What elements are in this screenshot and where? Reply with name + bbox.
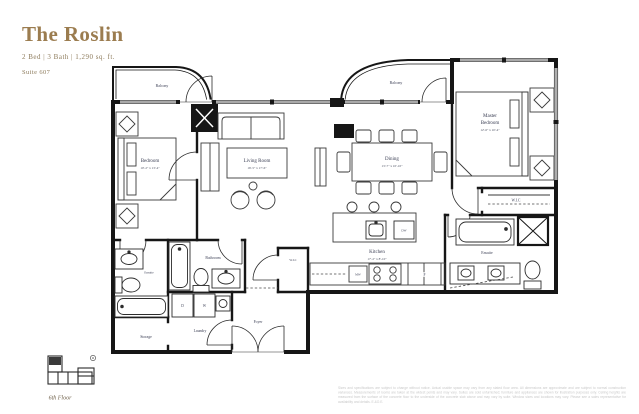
storage-label: Storage <box>140 335 152 339</box>
window-mullion <box>502 58 506 63</box>
bedroom-dims: 10'-2" x 13'-4" <box>140 166 160 170</box>
kitchen-fixtures: DW MW F <box>310 202 445 285</box>
master-ensuite-label: Ensuite <box>481 251 493 255</box>
disclaimer-text: Sizes and specifications are subject to … <box>338 386 626 404</box>
bedroom-label: Bedroom <box>141 159 160 164</box>
living-room-label: Living Room <box>244 159 271 164</box>
wall-pier <box>330 98 344 107</box>
dishwasher-label: DW <box>401 229 406 233</box>
balcony-left-label: Balcony <box>156 84 169 88</box>
compass-icon <box>90 355 95 360</box>
kitchen-label: Kitchen <box>369 250 385 255</box>
bathroom-fixtures <box>169 242 240 292</box>
dining-furniture <box>337 130 447 194</box>
master-bedroom-label-2: Bedroom <box>481 121 500 126</box>
window-mullion <box>554 120 559 124</box>
balcony-right-label: Balcony <box>390 81 403 85</box>
master-bedroom-label-1: Master <box>483 114 497 119</box>
keyplan: 6th Floor <box>48 355 96 401</box>
window-mullion <box>270 100 274 105</box>
master-wic-label: W.I.C <box>512 199 521 203</box>
washer-label: W <box>203 304 207 308</box>
kitchen-dims: 17'-2" x 8'-10" <box>367 257 387 261</box>
column <box>334 124 354 138</box>
living-room-dims: 16'-5" x 17'-6" <box>247 166 267 170</box>
foyer-label: Foyer <box>254 320 264 324</box>
bathroom-label: Bathroom <box>205 256 220 260</box>
living-room-furniture <box>218 113 326 209</box>
fridge-label: F <box>424 273 426 277</box>
dryer-label: D <box>181 304 184 308</box>
dining-label: Dining <box>385 157 399 162</box>
floorplan-page: The Roslin 2 Bed | 3 Bath | 1,290 sq. ft… <box>0 0 639 414</box>
laundry-label: Laundry <box>194 329 207 333</box>
dining-dims: 13'-7" x 10'-10" <box>382 164 404 168</box>
master-bedroom-dims: 12'-6" x 10'-4" <box>480 128 500 132</box>
hall-wic-label: W.I.C <box>289 258 296 262</box>
floorplan-drawing: DW MW F <box>0 0 639 414</box>
highlighted-unit <box>49 357 61 365</box>
master-bedroom-furniture <box>456 88 554 180</box>
window-mullion <box>380 100 384 105</box>
bedroom-ensuite-label: Ensuite <box>144 271 154 275</box>
laundry-fixtures: D W <box>172 294 230 317</box>
keyplan-caption: 6th Floor <box>49 396 72 402</box>
bedroom-ensuite-fixtures <box>115 249 168 317</box>
microwave-label: MW <box>355 273 361 277</box>
